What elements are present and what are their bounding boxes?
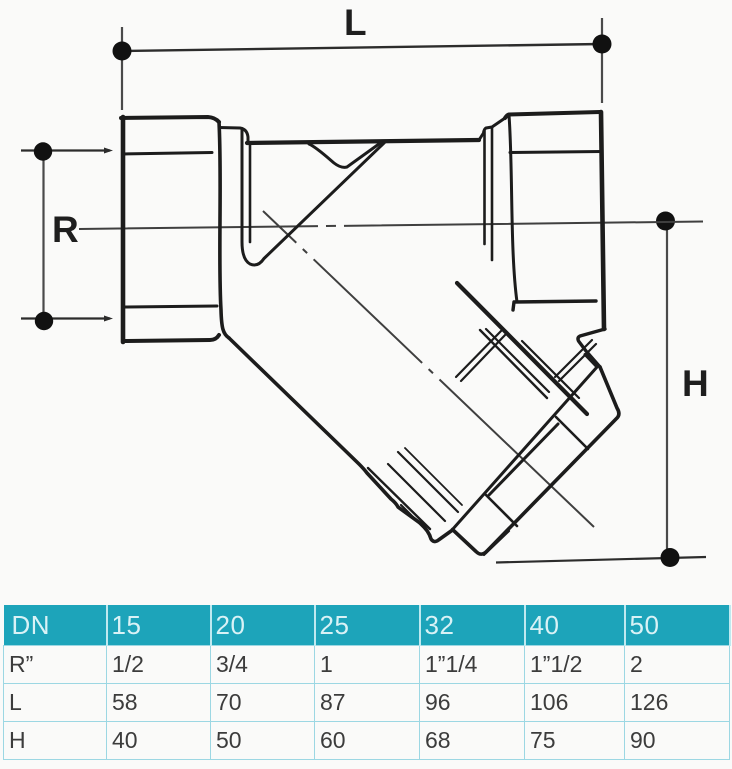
svg-text:H: H — [682, 363, 709, 404]
svg-text:R: R — [52, 209, 79, 250]
svg-text:L: L — [344, 2, 367, 43]
